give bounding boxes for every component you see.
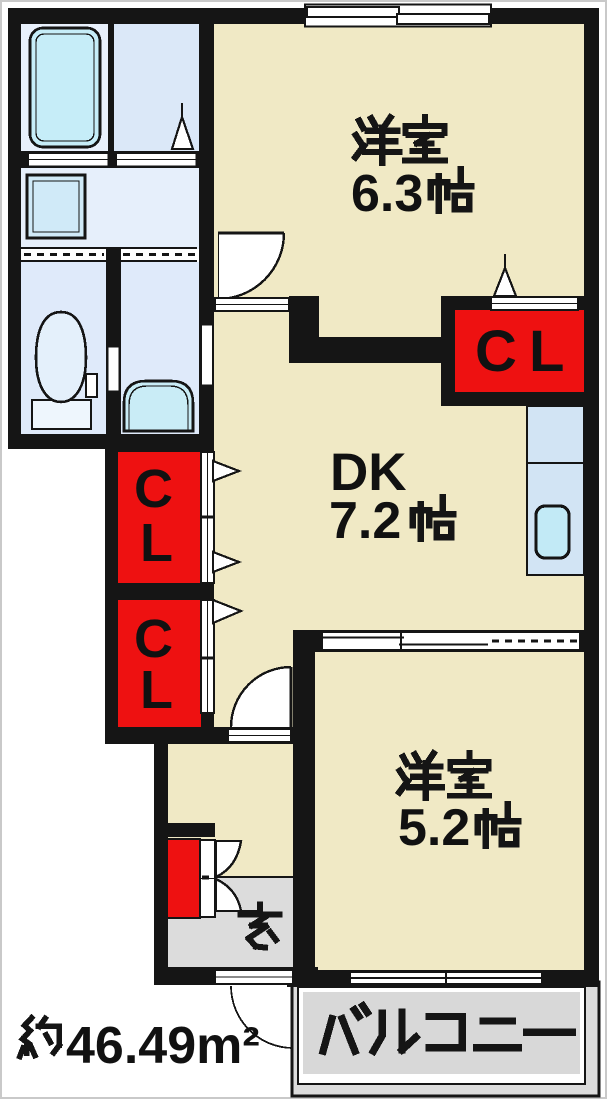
svg-text:7.2: 7.2 xyxy=(329,492,401,550)
svg-text:L: L xyxy=(140,513,173,573)
svg-text:L: L xyxy=(529,319,564,384)
svg-text:L: L xyxy=(140,660,173,720)
svg-text:46.49m²: 46.49m² xyxy=(66,1017,260,1075)
svg-text:C: C xyxy=(475,319,517,384)
svg-text:6.3: 6.3 xyxy=(351,165,423,223)
svg-text:5.2: 5.2 xyxy=(398,799,470,857)
svg-text:C: C xyxy=(134,459,173,519)
